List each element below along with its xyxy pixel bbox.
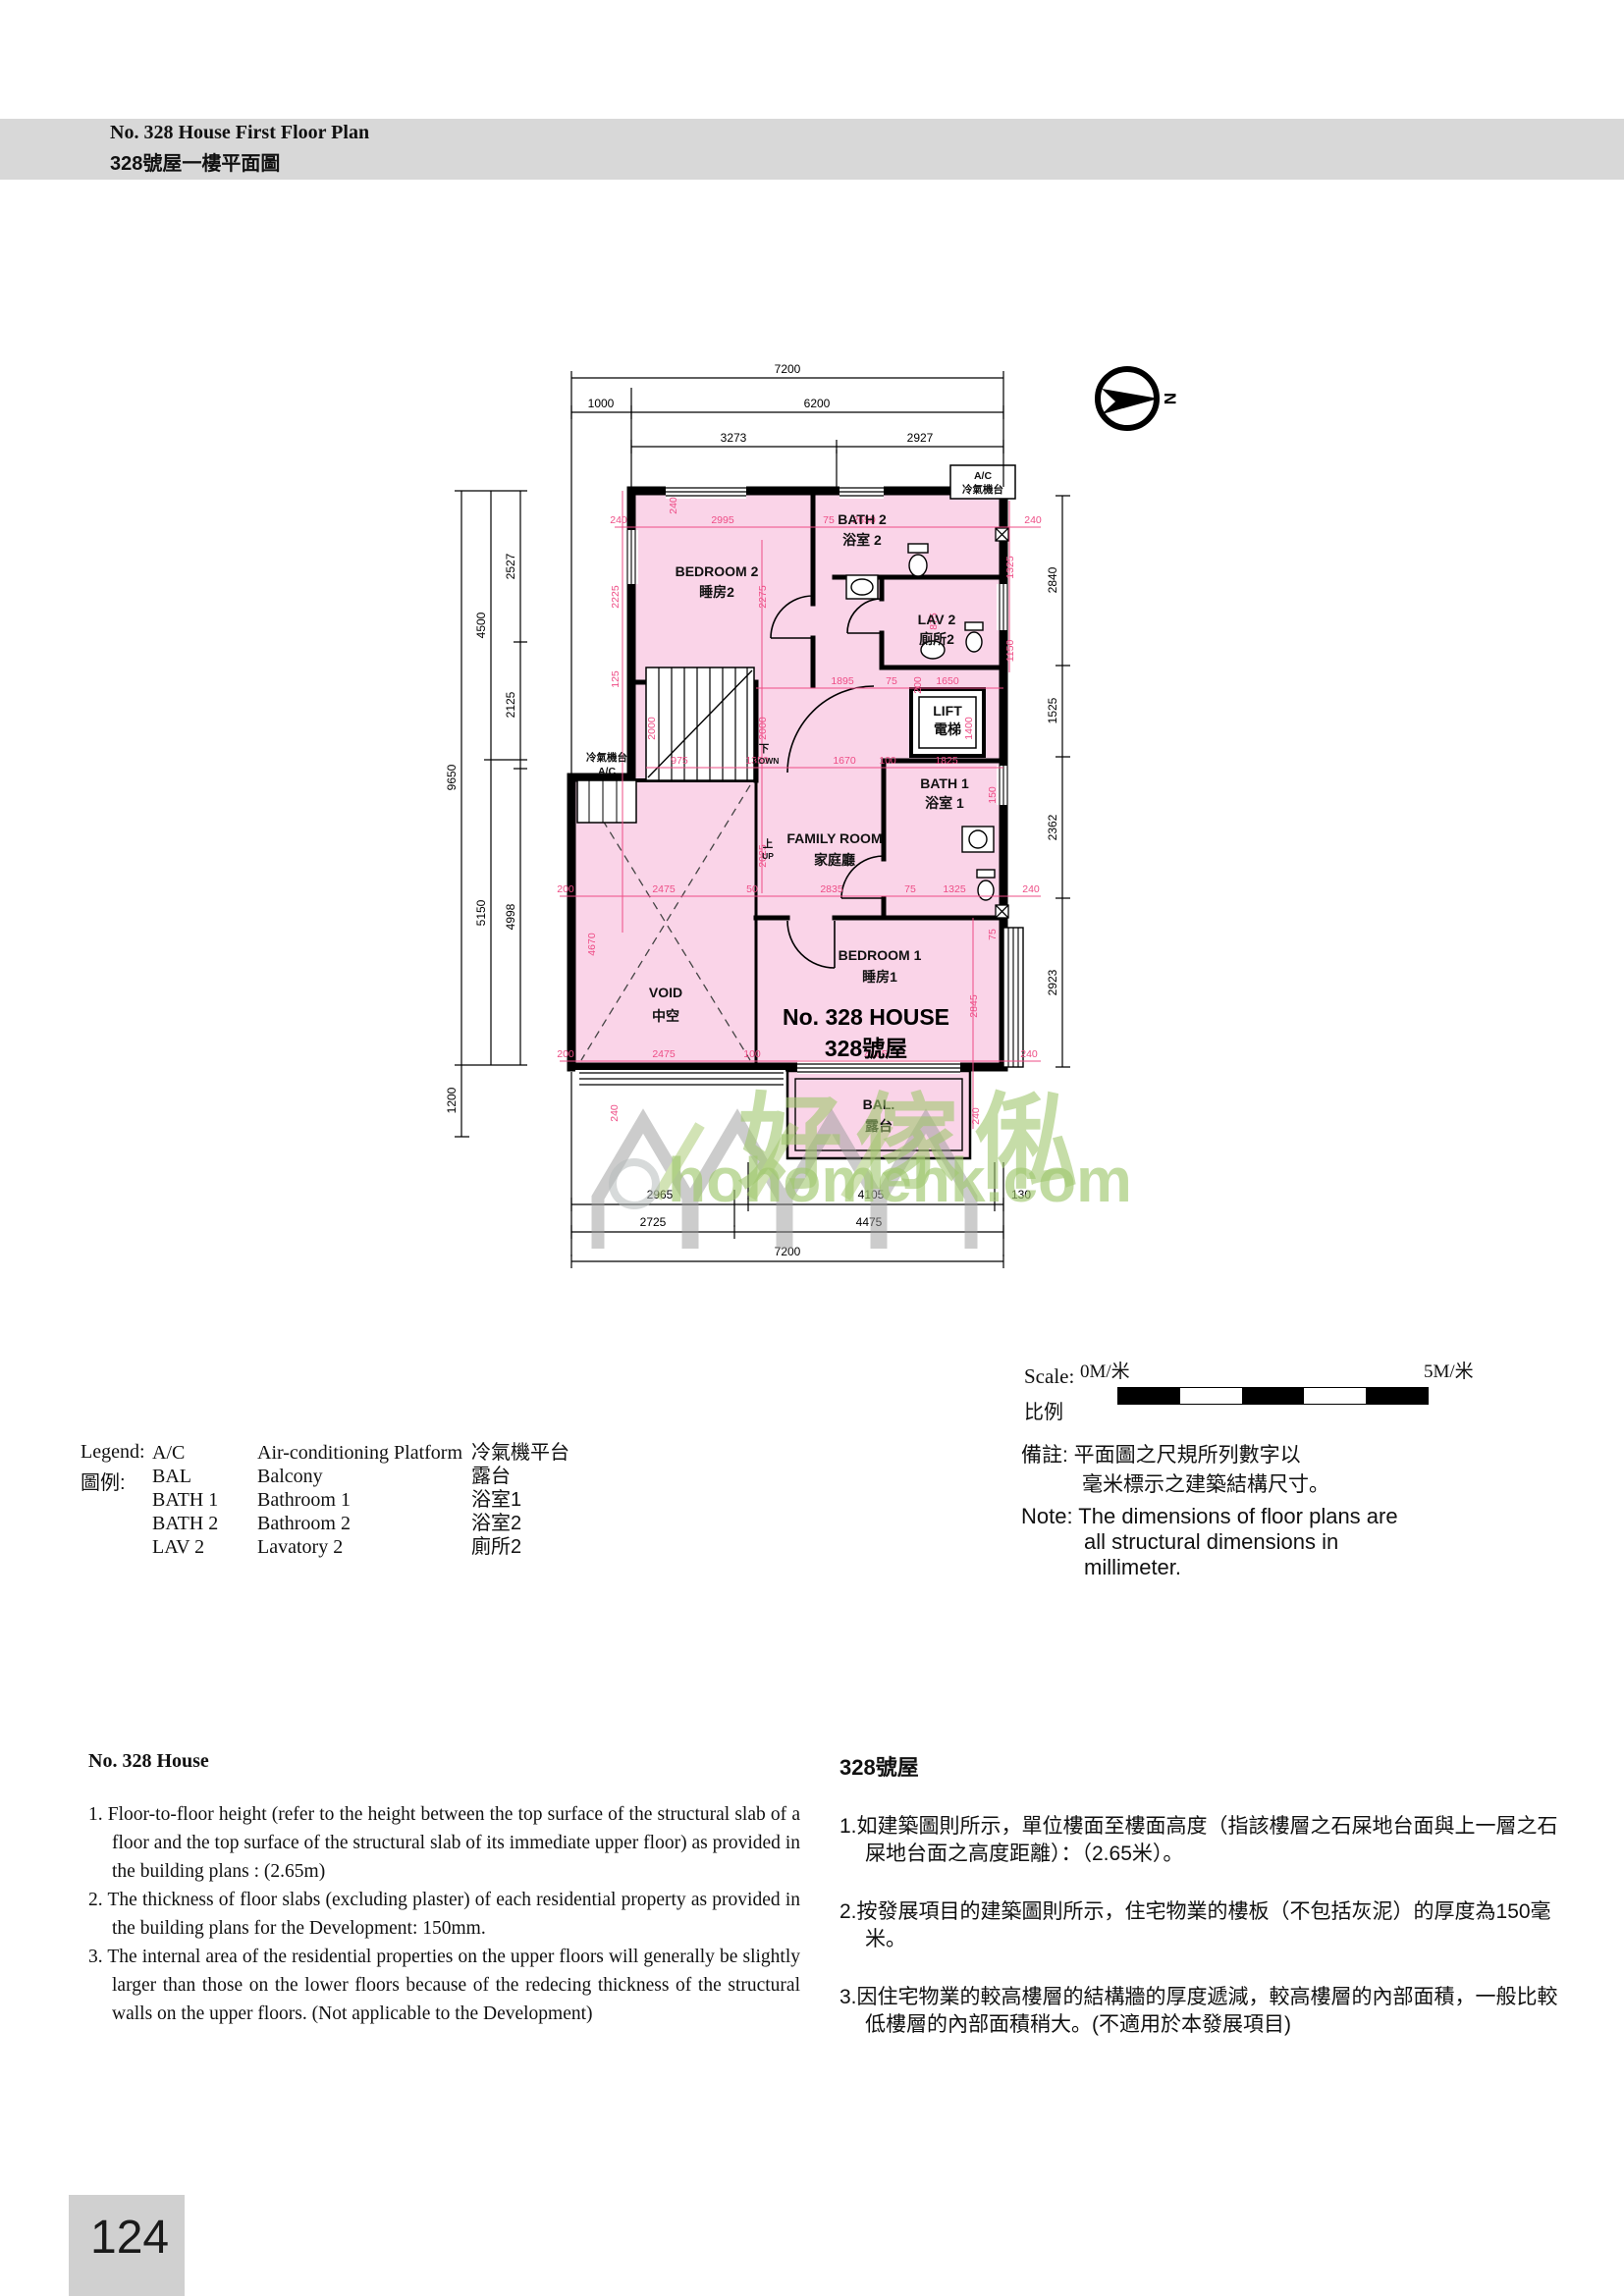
inner-dim-label: 50 bbox=[746, 883, 758, 895]
dim-label: 2125 bbox=[504, 691, 517, 718]
notes-english: No. 328 House 1. Floor-to-floor height (… bbox=[88, 1750, 800, 2028]
room-label-bath1-en: BATH 1 bbox=[920, 775, 969, 791]
inner-dim-label: 150 bbox=[987, 786, 999, 804]
dim-label: 2840 bbox=[1046, 566, 1059, 593]
inner-dim-label: 2475 bbox=[652, 1048, 676, 1060]
inner-dim-label: 2995 bbox=[711, 514, 734, 526]
page-title-en: No. 328 House First Floor Plan bbox=[110, 122, 369, 144]
notes-chinese-title: 328號屋 bbox=[839, 1750, 1571, 1782]
north-compass: N bbox=[1088, 353, 1176, 442]
inner-dim-label: 75 bbox=[823, 514, 835, 526]
notes-english-item: 2. The thickness of floor slabs (excludi… bbox=[88, 1886, 800, 1943]
inner-dim-label: 1650 bbox=[936, 675, 959, 687]
inner-dim-label: 75 bbox=[904, 883, 916, 895]
inner-dim-label: 2000 bbox=[757, 717, 769, 740]
watermark-circle-icon bbox=[609, 1158, 660, 1209]
legend-code: BATH 2 bbox=[152, 1512, 257, 1535]
legend-items: A/C Air-conditioning Platform 冷氣機平台 BAL … bbox=[152, 1441, 569, 1559]
notes-english-title: No. 328 House bbox=[88, 1750, 800, 1773]
stair-up-en: UP bbox=[762, 851, 774, 861]
room-label-lav2-zh: 廁所2 bbox=[919, 631, 954, 647]
legend-code: A/C bbox=[152, 1441, 257, 1465]
inner-dim-label: 4670 bbox=[586, 933, 598, 956]
legend-zh: 露台 bbox=[471, 1465, 511, 1488]
legend-en: Air-conditioning Platform bbox=[257, 1441, 471, 1465]
label-ac-left-en: A/C bbox=[598, 766, 617, 777]
stair-down-en: DOWN bbox=[753, 756, 780, 766]
inner-dim-label: 1670 bbox=[833, 755, 856, 767]
dim-label: 1200 bbox=[445, 1087, 459, 1113]
page-number: 124 bbox=[90, 2211, 185, 2265]
dim-label: 1000 bbox=[588, 397, 615, 410]
inner-dim-label: 75 bbox=[886, 675, 897, 687]
inner-dim-label: 975 bbox=[671, 755, 688, 767]
room-label-family-en: FAMILY ROOM bbox=[786, 830, 882, 846]
inner-dim-label: 200 bbox=[557, 1048, 574, 1060]
note-zh-line1: 備註: 平面圖之尺規所列數字以 bbox=[1021, 1439, 1591, 1468]
notes-chinese-item: 1.如建築圖則所示，單位樓面至樓面高度（指該樓層之石屎地台面與上一層之石屎地台面… bbox=[839, 1813, 1571, 1868]
inner-dim-label: 1325 bbox=[943, 883, 966, 895]
inner-dim-label: 1400 bbox=[963, 717, 975, 740]
dim-label: 7200 bbox=[775, 362, 801, 376]
inner-dim-label: 100 bbox=[879, 755, 896, 767]
legend-en: Balcony bbox=[257, 1465, 471, 1488]
inner-dim-label: 125 bbox=[610, 670, 622, 688]
inner-dim-label: 2475 bbox=[652, 883, 676, 895]
legend-code: BATH 1 bbox=[152, 1488, 257, 1512]
legend-zh: 浴室2 bbox=[471, 1512, 521, 1535]
header-band: No. 328 House First Floor Plan 328號屋一樓平面… bbox=[0, 119, 1624, 180]
room-label-bedroom1-en: BEDROOM 1 bbox=[839, 947, 922, 963]
inner-dim-label: 2225 bbox=[610, 585, 622, 609]
legend-title-zh: 圖例: bbox=[81, 1467, 145, 1495]
dim-label: 5150 bbox=[474, 899, 488, 926]
scale-bar bbox=[1117, 1387, 1429, 1405]
scale-bar-segment bbox=[1242, 1388, 1304, 1404]
room-label-bedroom2-en: BEDROOM 2 bbox=[676, 563, 759, 579]
scale-bar-segment bbox=[1180, 1388, 1242, 1404]
inner-dim-label: 240 bbox=[610, 514, 627, 526]
notes-chinese: 328號屋 1.如建築圖則所示，單位樓面至樓面高度（指該樓層之石屎地台面與上一層… bbox=[839, 1750, 1571, 2069]
notes-chinese-item: 2.按發展項目的建築圖則所示，住宅物業的樓板（不包括灰泥）的厚度為150毫米。 bbox=[839, 1898, 1571, 1953]
room-label-bath2-en: BATH 2 bbox=[838, 511, 887, 527]
dim-label: 1525 bbox=[1046, 697, 1059, 723]
legend-row: BATH 2 Bathroom 2 浴室2 bbox=[152, 1512, 569, 1535]
legend-en: Lavatory 2 bbox=[257, 1535, 471, 1559]
house-name-en: No. 328 HOUSE bbox=[783, 1004, 949, 1030]
inner-dim-label: 75 bbox=[987, 929, 999, 940]
legend-title-en: Legend: bbox=[81, 1441, 145, 1464]
dim-label: 2927 bbox=[907, 431, 934, 445]
dim-label: 2527 bbox=[504, 553, 517, 579]
legend-en: Bathroom 2 bbox=[257, 1512, 471, 1535]
note-en-line2: all structural dimensions in bbox=[1084, 1529, 1591, 1555]
scale-label-zh: 比例 bbox=[1024, 1396, 1063, 1424]
brochure-page: No. 328 House First Floor Plan 328號屋一樓平面… bbox=[0, 0, 1624, 2296]
note-en-line3: millimeter. bbox=[1084, 1555, 1591, 1580]
staircase bbox=[646, 667, 754, 780]
dim-label: 4500 bbox=[474, 612, 488, 638]
inner-dim-label: 200 bbox=[557, 883, 574, 895]
notes-english-item: 1. Floor-to-floor height (refer to the h… bbox=[88, 1800, 800, 1886]
compass-arrow-icon bbox=[1102, 389, 1159, 414]
note-zh-line2: 毫米標示之建築結構尺寸。 bbox=[1082, 1468, 1591, 1498]
dimension-note: 備註: 平面圖之尺規所列數字以 毫米標示之建築結構尺寸。 Note: The d… bbox=[1021, 1439, 1591, 1580]
room-label-void-en: VOID bbox=[649, 985, 682, 1000]
label-ac-top-en: A/C bbox=[974, 470, 993, 482]
legend-zh: 廁所2 bbox=[471, 1535, 521, 1559]
label-ac-top-zh: 冷氣機台 bbox=[962, 483, 1003, 496]
room-label-lav2-en: LAV 2 bbox=[918, 612, 956, 627]
legend-row: BATH 1 Bathroom 1 浴室1 bbox=[152, 1488, 569, 1512]
room-label-lift-zh: 電梯 bbox=[934, 721, 961, 737]
inner-dim-label: 2275 bbox=[757, 585, 769, 609]
scale-bar-segment bbox=[1366, 1388, 1428, 1404]
scale-end-label: 5M/米 bbox=[1424, 1357, 1474, 1383]
legend-code: BAL bbox=[152, 1465, 257, 1488]
notes-english-item: 3. The internal area of the residential … bbox=[88, 1943, 800, 2028]
note-en-line1: Note: The dimensions of floor plans are bbox=[1021, 1504, 1591, 1529]
room-label-bedroom2-zh: 睡房2 bbox=[699, 584, 734, 600]
room-label-bath2-zh: 浴室 2 bbox=[842, 532, 882, 548]
legend-en: Bathroom 1 bbox=[257, 1488, 471, 1512]
dim-label: 2362 bbox=[1046, 814, 1059, 840]
scale-bar-segment bbox=[1304, 1388, 1366, 1404]
inner-dim-label: 1150 bbox=[1004, 640, 1016, 663]
inner-dim-label: 2000 bbox=[646, 717, 658, 740]
legend-code: LAV 2 bbox=[152, 1535, 257, 1559]
inner-dim-label: 2845 bbox=[968, 994, 980, 1018]
notes-chinese-item: 3.因住宅物業的較高樓層的結構牆的厚度遞減，較高樓層的內部面積，一般比較低樓層的… bbox=[839, 1984, 1571, 2039]
inner-dim-label: 2835 bbox=[820, 883, 843, 895]
room-label-bedroom1-zh: 睡房1 bbox=[862, 969, 897, 985]
scale-start-label: 0M/米 bbox=[1080, 1357, 1130, 1383]
legend-row: LAV 2 Lavatory 2 廁所2 bbox=[152, 1535, 569, 1559]
dim-label: 2923 bbox=[1046, 969, 1059, 995]
inner-dim-label: 240 bbox=[1022, 883, 1040, 895]
stair-down-zh: 下 bbox=[759, 743, 770, 755]
legend-row: BAL Balcony 露台 bbox=[152, 1465, 569, 1488]
inner-dim-label: 240 bbox=[1024, 514, 1042, 526]
inner-dim-label: 1325 bbox=[1004, 556, 1016, 579]
compass-north-label: N bbox=[1161, 393, 1176, 404]
legend-zh: 冷氣機平台 bbox=[471, 1441, 569, 1465]
room-label-family-zh: 家庭廳 bbox=[814, 852, 855, 868]
room-label-bath1-zh: 浴室 1 bbox=[925, 795, 964, 811]
scale-label-en: Scale: bbox=[1024, 1364, 1074, 1389]
page-number-box: 124 bbox=[69, 2195, 185, 2296]
dim-label: 9650 bbox=[445, 764, 459, 790]
label-ac-left-zh: 冷氣機台 bbox=[586, 751, 627, 764]
inner-dim-label: 1825 bbox=[935, 755, 958, 767]
legend-title: Legend: 圖例: bbox=[81, 1441, 145, 1495]
inner-dim-label: 1895 bbox=[831, 675, 854, 687]
room-label-lift-en: LIFT bbox=[933, 703, 962, 719]
legend-zh: 浴室1 bbox=[471, 1488, 521, 1512]
dim-label: 3273 bbox=[721, 431, 747, 445]
dim-label: 4998 bbox=[504, 903, 517, 930]
room-label-void-zh: 中空 bbox=[652, 1008, 679, 1024]
page-title-zh: 328號屋一樓平面圖 bbox=[110, 147, 280, 176]
inner-dim-label: 200 bbox=[912, 676, 924, 694]
inner-dim-label: 240 bbox=[668, 497, 679, 514]
scale-bar-segment bbox=[1118, 1388, 1180, 1404]
watermark-url-text: hohomehk.com bbox=[668, 1144, 1132, 1216]
stair-up-zh: 上 bbox=[763, 837, 774, 850]
dim-label: 6200 bbox=[804, 397, 831, 410]
legend-row: A/C Air-conditioning Platform 冷氣機平台 bbox=[152, 1441, 569, 1465]
